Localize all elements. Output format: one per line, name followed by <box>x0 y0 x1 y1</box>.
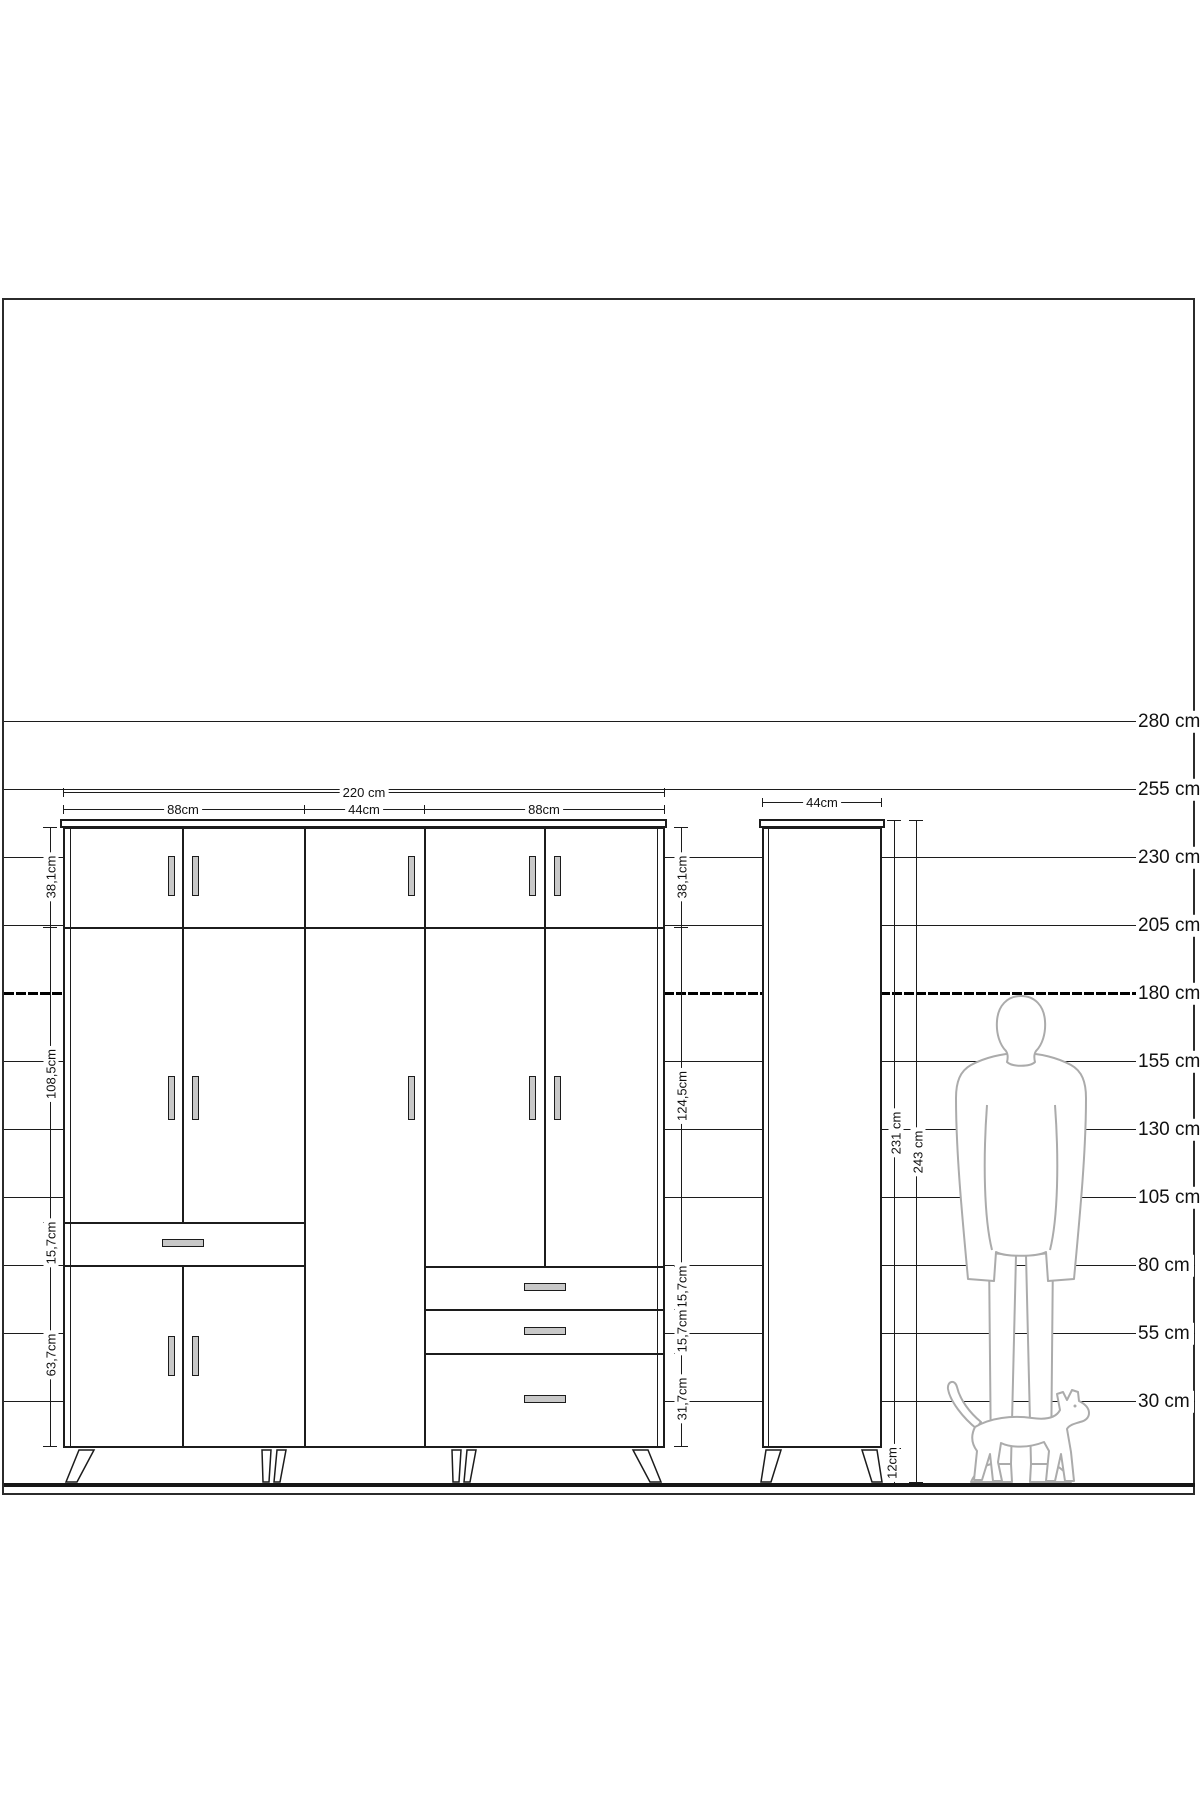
wardrobe-section-divider-right <box>424 929 426 1446</box>
scale-label-180: 180 cm <box>1136 983 1200 1005</box>
dim-tick <box>762 798 763 807</box>
wardrobe-left-dim-label-2: 108,5cm <box>44 1046 59 1102</box>
dim-tick <box>63 788 64 797</box>
door-handle <box>192 856 199 896</box>
wardrobe-right-drawer-divider-2 <box>424 1309 665 1311</box>
scale-label-205: 205 cm <box>1136 915 1200 937</box>
wardrobe-section-divider-left <box>304 929 306 1446</box>
wardrobe-right-dim-label-2: 124,5cm <box>675 1068 690 1124</box>
dim-tick <box>424 805 425 814</box>
dim-tick <box>674 1446 688 1447</box>
cabinet-total-height-label: 243 cm <box>911 1128 926 1177</box>
wardrobe-section-width-label-1: 88cm <box>164 802 202 817</box>
wardrobe-right-dim-label-5: 31,7cm <box>675 1375 690 1424</box>
door-handle <box>192 1076 199 1120</box>
drawer-handle <box>162 1239 204 1247</box>
door-handle <box>554 1076 561 1120</box>
floor-line <box>4 1483 1195 1487</box>
drawer-handle <box>524 1395 566 1403</box>
door-handle <box>168 1076 175 1120</box>
door-handle <box>168 856 175 896</box>
dim-tick <box>43 927 57 928</box>
wardrobe-left-drawer-top <box>63 1222 304 1224</box>
wardrobe-right-dim-label-1: 38,1cm <box>675 853 690 902</box>
dim-tick <box>63 805 64 814</box>
cabinet-width-label: 44cm <box>803 795 841 810</box>
wardrobe-left-bottom-door-split <box>182 1267 184 1446</box>
scale-label-55: 55 cm <box>1136 1323 1194 1345</box>
cabinet-carcass <box>762 827 882 1448</box>
cabinet-leg-height-label: 12cm <box>885 1444 900 1482</box>
dim-tick <box>664 788 665 797</box>
door-handle <box>554 856 561 896</box>
wardrobe-top-door-split-4 <box>544 829 546 927</box>
scale-label-105: 105 cm <box>1136 1187 1200 1209</box>
wardrobe-right-door-split <box>544 929 546 1266</box>
wardrobe-right-dim-label-3: 15,7cm <box>675 1263 690 1312</box>
door-handle <box>529 1076 536 1120</box>
wardrobe-right-drawer-divider-3 <box>424 1353 665 1355</box>
dim-tick <box>909 820 923 821</box>
wardrobe-left-panel-line <box>70 829 71 1446</box>
wardrobe-top-row-divider <box>63 927 665 929</box>
dim-tick <box>674 927 688 928</box>
scale-label-30: 30 cm <box>1136 1391 1194 1413</box>
scale-label-80: 80 cm <box>1136 1255 1194 1277</box>
wardrobe-top-door-split-1 <box>182 829 184 927</box>
door-handle <box>408 1076 415 1120</box>
drawer-handle <box>524 1283 566 1291</box>
wardrobe-top-door-split-2 <box>304 829 306 927</box>
dim-tick <box>43 827 57 828</box>
scale-label-130: 130 cm <box>1136 1119 1200 1141</box>
wardrobe-right-dim-label-4: 15,7cm <box>675 1307 690 1356</box>
drawer-handle <box>524 1327 566 1335</box>
wardrobe-left-dim-label-4: 63,7cm <box>44 1331 59 1380</box>
technical-drawing-page: 220 cm 88cm 44cm 88cm 44cm 38,1cm 108,5c… <box>0 0 1200 1800</box>
wardrobe-top-door-split-3 <box>424 829 426 927</box>
cabinet-carcass-height-label: 231 cm <box>889 1109 904 1158</box>
dim-tick <box>304 805 305 814</box>
wardrobe-section-width-label-3: 88cm <box>525 802 563 817</box>
dim-tick <box>664 805 665 814</box>
scale-line-255 <box>4 789 1195 790</box>
scale-label-280: 280 cm <box>1136 711 1200 733</box>
wardrobe-right-drawer-divider-1 <box>424 1266 665 1268</box>
wardrobe-section-width-label-2: 44cm <box>345 802 383 817</box>
door-handle <box>529 856 536 896</box>
dim-tick <box>674 827 688 828</box>
cabinet-door-edge-line <box>768 829 769 1446</box>
scale-line-280 <box>4 721 1195 722</box>
door-handle <box>168 1336 175 1376</box>
wardrobe-left-mid-door-split <box>182 929 184 1222</box>
wardrobe-left-dim-label-3: 15,7cm <box>44 1219 59 1268</box>
door-handle <box>408 856 415 896</box>
scale-label-230: 230 cm <box>1136 847 1200 869</box>
wardrobe-left-dim-label-1: 38,1cm <box>44 853 59 902</box>
dim-tick <box>887 820 901 821</box>
scale-label-155: 155 cm <box>1136 1051 1200 1073</box>
dim-tick <box>881 798 882 807</box>
dim-tick <box>43 1446 57 1447</box>
door-handle <box>192 1336 199 1376</box>
wardrobe-total-width-label: 220 cm <box>340 785 389 800</box>
scale-label-255: 255 cm <box>1136 779 1200 801</box>
